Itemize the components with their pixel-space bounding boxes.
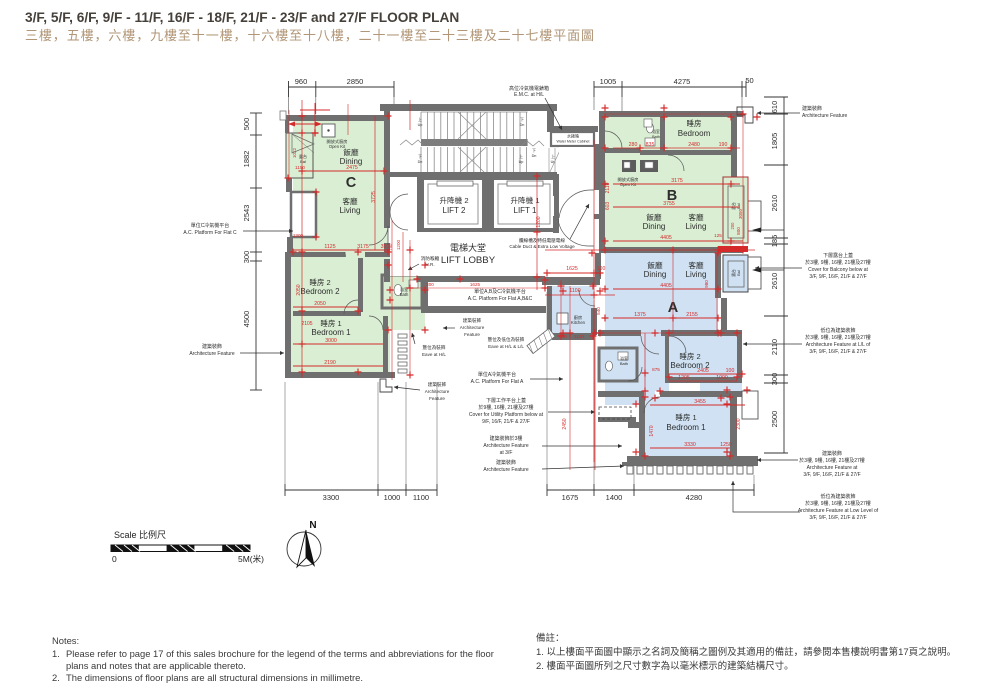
svg-text:3755: 3755 [663,201,675,207]
svg-text:2105: 2105 [301,321,312,327]
svg-text:1125: 1125 [324,244,335,250]
svg-text:3175: 3175 [671,178,683,184]
svg-text:露台: 露台 [731,269,736,277]
svg-text:Feature: Feature [464,332,480,337]
svg-text:1022: 1022 [292,147,297,158]
svg-text:Architecture Feature: Architecture Feature [483,443,529,449]
svg-text:Dining: Dining [643,222,666,231]
svg-text:1200: 1200 [536,216,542,227]
svg-text:建築裝飾: 建築裝飾 [496,459,516,466]
svg-text:980: 980 [704,280,709,288]
svg-text:建築裝飾: 建築裝飾 [463,317,482,324]
svg-text:2450: 2450 [562,418,568,429]
svg-text:2480: 2480 [688,142,700,148]
svg-text:1000: 1000 [716,375,728,381]
svg-text:200: 200 [730,222,735,230]
svg-text:1000: 1000 [384,493,401,502]
svg-text:4405: 4405 [660,235,672,241]
svg-text:建築裝飾: 建築裝飾 [802,105,822,112]
svg-text:A.C. Platform For Flat A,B&C: A.C. Platform For Flat A,B&C [468,296,533,302]
svg-text:1. 以上樓面平面圖中顯示之名詞及簡稱之圖例及其適用的備註: 1. 以上樓面平面圖中顯示之名詞及簡稱之圖例及其適用的備註，請參閱本售樓說明書第… [536,646,956,658]
svg-text:3/F, 9/F, 16/F, 21/F & 27/F: 3/F, 9/F, 16/F, 21/F & 27/F [803,472,860,478]
svg-text:2543: 2543 [242,205,251,222]
svg-text:於3樓, 9樓, 16樓, 21樓及27樓: 於3樓, 9樓, 16樓, 21樓及27樓 [805,334,871,341]
svg-text:Eave at H/L: Eave at H/L [422,352,446,357]
svg-text:Cover for Balcony below at: Cover for Balcony below at [808,267,868,273]
svg-text:1200: 1200 [396,239,401,250]
svg-text:3050: 3050 [738,208,743,219]
svg-text:1250: 1250 [720,442,732,448]
svg-text:Living: Living [340,206,361,215]
svg-text:300: 300 [426,282,434,287]
svg-text:185: 185 [770,235,779,248]
svg-text:2475: 2475 [346,165,358,171]
svg-text:Bal: Bal [737,270,741,276]
svg-text:1300: 1300 [293,233,304,238]
svg-text:Architecture Feature at: Architecture Feature at [807,465,858,471]
svg-text:於3樓, 9樓, 16樓, 21樓及27樓: 於3樓, 9樓, 16樓, 21樓及27樓 [805,259,871,266]
svg-text:於3樓, 9樓, 16樓, 21樓及27樓: 於3樓, 9樓, 16樓, 21樓及27樓 [805,500,871,507]
svg-text:1400: 1400 [606,493,623,502]
svg-text:低位為建築裝飾: 低位為建築裝飾 [820,327,855,334]
svg-text:at 3/F: at 3/F [500,450,513,456]
svg-text:睡房 2: 睡房 2 [679,351,700,361]
svg-text:Architecture: Architecture [460,325,485,330]
svg-text:LIFT LOBBY: LIFT LOBBY [441,255,496,266]
svg-text:Bath: Bath [652,135,660,139]
svg-text:300: 300 [770,373,779,386]
svg-text:高位冷氣機電錶箱: 高位冷氣機電錶箱 [509,85,549,92]
svg-text:plans and notes that are appli: plans and notes that are applicable ther… [66,660,246,671]
svg-text:飯廳: 飯廳 [647,260,663,270]
svg-text:Notes:: Notes: [52,635,79,646]
svg-text:3300: 3300 [323,493,340,502]
svg-text:800: 800 [736,227,741,235]
svg-text:Cover for Utility Platform bel: Cover for Utility Platform below at [469,412,544,418]
svg-text:0: 0 [112,554,117,564]
svg-text:客廳: 客廳 [688,212,704,222]
svg-text:2405: 2405 [697,368,709,374]
svg-text:Eave at H/L & L/L: Eave at H/L & L/L [488,344,524,349]
svg-text:Bedroom 2: Bedroom 2 [300,287,340,296]
svg-text:3330: 3330 [684,442,696,448]
svg-text:2850: 2850 [347,77,364,86]
svg-text:LIFT 1: LIFT 1 [514,206,538,215]
svg-text:Up: Up [519,160,524,164]
svg-text:1375: 1375 [634,312,646,318]
svg-text:下: 下 [532,149,536,153]
svg-text:280: 280 [629,142,638,148]
svg-text:升降機 1: 升降機 1 [510,195,539,205]
svg-text:9/F, 16/F, 21/F & 27/F: 9/F, 16/F, 21/F & 27/F [482,419,530,425]
svg-text:190: 190 [719,142,728,148]
svg-text:603: 603 [605,202,611,211]
svg-text:4405: 4405 [660,283,672,289]
svg-text:A.C. Platform For Flat C: A.C. Platform For Flat C [183,230,237,236]
svg-text:500: 500 [242,118,251,131]
svg-text:Living: Living [686,270,707,279]
svg-text:2.: 2. [52,672,60,683]
svg-text:960: 960 [295,77,308,86]
svg-text:Dn: Dn [520,123,525,127]
svg-text:Architecture Feature: Architecture Feature [189,351,235,357]
svg-text:100: 100 [597,266,606,272]
svg-text:1470: 1470 [649,425,655,436]
svg-text:電梯大堂: 電梯大堂 [450,242,486,253]
svg-text:5M(米): 5M(米) [238,554,264,564]
svg-text:The dimensions of floor plans: The dimensions of floor plans are all st… [66,672,363,683]
svg-text:2050: 2050 [314,301,326,307]
svg-text:3/F, 5/F, 6/F, 9/F - 11/F, 16/: 3/F, 5/F, 6/F, 9/F - 11/F, 16/F - 18/F, … [25,10,459,25]
svg-text:Bath: Bath [400,292,409,297]
svg-text:下: 下 [520,118,524,122]
svg-text:Architecture: Architecture [425,389,450,394]
svg-text:50: 50 [745,76,753,85]
svg-text:Bal: Bal [737,203,741,209]
svg-text:Please refer to page 17 of thi: Please refer to page 17 of this sales br… [66,648,494,659]
svg-text:1100: 1100 [413,493,429,502]
svg-text:睡房 1: 睡房 1 [320,318,341,328]
svg-text:1150: 1150 [295,165,305,170]
svg-text:上: 上 [551,154,555,159]
svg-text:三樓，五樓，六樓，九樓至十一樓，十六樓至十八樓，二十一樓至二: 三樓，五樓，六樓，九樓至十一樓，十六樓至十八樓，二十一樓至二十三樓及二十七樓平面… [25,28,595,43]
svg-text:建築裝飾: 建築裝飾 [428,381,447,388]
svg-text:875: 875 [652,367,660,372]
svg-text:水錶箱: 水錶箱 [567,133,579,139]
svg-text:LIFT 2: LIFT 2 [443,206,467,215]
svg-text:建築裝飾: 建築裝飾 [822,450,842,457]
svg-text:浴室: 浴室 [652,129,660,134]
svg-text:2610: 2610 [770,195,779,212]
svg-text:1005: 1005 [600,77,617,86]
svg-text:835: 835 [646,142,655,148]
svg-text:Bal: Bal [300,159,306,164]
svg-text:2300: 2300 [736,418,742,429]
svg-text:2610: 2610 [770,273,779,290]
svg-text:3725: 3725 [371,191,377,203]
svg-text:3175: 3175 [357,244,369,250]
svg-text:低位為建築裝飾: 低位為建築裝飾 [820,493,855,500]
svg-text:2155: 2155 [686,312,698,318]
svg-text:4280: 4280 [686,493,703,502]
svg-text:下層露台上蓋: 下層露台上蓋 [823,252,853,259]
svg-text:下: 下 [418,155,422,159]
svg-text:4275: 4275 [674,77,691,86]
svg-text:Up: Up [418,123,423,127]
svg-text:露台: 露台 [731,202,736,210]
svg-text:上: 上 [418,117,422,122]
svg-text:Kitchen: Kitchen [571,320,586,325]
svg-text:單位C冷氣機平台: 單位C冷氣機平台 [191,222,230,229]
svg-text:Bedroom: Bedroom [678,129,711,138]
svg-text:消防喉轆: 消防喉轆 [421,255,440,262]
svg-text:1675: 1675 [562,493,579,502]
svg-text:簷位為裝飾: 簷位為裝飾 [423,344,446,351]
svg-text:Living: Living [686,222,707,231]
svg-text:建築裝飾: 建築裝飾 [202,343,222,350]
svg-text:客廳: 客廳 [342,196,358,206]
svg-text:Dn: Dn [418,160,423,164]
svg-text:2. 樓面平面圖所列之尺寸數字為以毫米標示的建築結構尺寸。: 2. 樓面平面圖所列之尺寸數字為以毫米標示的建築結構尺寸。 [536,660,794,672]
svg-text:3455: 3455 [694,399,706,405]
svg-text:3/F, 9/F, 16/F, 21/F & 27/F: 3/F, 9/F, 16/F, 21/F & 27/F [809,515,866,521]
svg-text:於3樓, 9樓, 16樓, 21樓及27樓: 於3樓, 9樓, 16樓, 21樓及27樓 [799,457,865,464]
svg-text:簷位及低位為裝飾: 簷位及低位為裝飾 [488,336,525,343]
svg-text:Bedroom 1: Bedroom 1 [311,328,351,337]
svg-text:E.M.C. at H/L: E.M.C. at H/L [514,92,544,98]
svg-text:1882: 1882 [242,151,251,168]
svg-text:4500: 4500 [242,311,251,328]
svg-text:2110: 2110 [770,339,779,355]
svg-text:睡房: 睡房 [687,118,702,128]
svg-text:Dn: Dn [532,154,537,158]
svg-text:Water Meter Cabinet: Water Meter Cabinet [556,140,589,144]
svg-text:3/F, 9/F, 16/F, 21/F & 27/F: 3/F, 9/F, 16/F, 21/F & 27/F [809,349,866,355]
svg-text:Dining: Dining [644,270,667,279]
svg-text:1100: 1100 [574,334,584,339]
svg-text:2050: 2050 [296,284,302,295]
svg-text:Scale 比例尺: Scale 比例尺 [114,529,166,540]
svg-text:建築裝飾於3樓: 建築裝飾於3樓 [490,435,523,442]
svg-text:1625: 1625 [470,282,481,287]
svg-text:飯廳: 飯廳 [646,212,662,222]
svg-text:1205: 1205 [678,375,690,381]
svg-text:1805: 1805 [770,133,779,150]
svg-text:睡房 2: 睡房 2 [309,277,330,287]
svg-text:Bath: Bath [620,361,628,366]
svg-text:Cable Duct & Extra Low Voltage: Cable Duct & Extra Low Voltage [509,244,575,249]
svg-text:單位A,B及C冷氣機平台: 單位A,B及C冷氣機平台 [474,288,526,295]
svg-text:A.C. Platform For Flat A: A.C. Platform For Flat A [471,379,524,385]
svg-text:客廳: 客廳 [688,260,704,270]
svg-text:2190: 2190 [324,360,336,366]
svg-text:C: C [346,175,357,191]
svg-text:單位A冷氣機平台: 單位A冷氣機平台 [478,371,516,378]
svg-text:於9樓, 16樓, 21樓及27樓: 於9樓, 16樓, 21樓及27樓 [478,404,533,411]
svg-text:睡房 1: 睡房 1 [675,412,696,422]
svg-text:Architecture Feature: Architecture Feature [483,467,529,473]
svg-text:Architecture Feature at Low Le: Architecture Feature at Low Level of [798,508,879,514]
svg-text:下層工作平台上蓋: 下層工作平台上蓋 [486,397,526,404]
svg-text:備註：: 備註： [536,632,565,644]
svg-text:Bedroom 1: Bedroom 1 [666,423,706,432]
svg-text:N: N [309,520,316,531]
svg-text:Architecture Feature: Architecture Feature [802,113,848,119]
svg-text:Open Kit: Open Kit [620,182,637,187]
svg-text:125: 125 [714,233,722,238]
svg-text:Feature: Feature [429,396,445,401]
svg-text:纜線槽及特低電壓電線: 纜線槽及特低電壓電線 [519,237,565,244]
svg-text:300: 300 [242,251,251,264]
svg-text:2500: 2500 [770,411,779,428]
svg-text:100: 100 [726,368,735,374]
svg-text:1625: 1625 [566,266,578,272]
svg-text:飯廳: 飯廳 [343,147,359,157]
svg-text:上: 上 [519,154,523,159]
svg-text:1.: 1. [52,648,60,659]
svg-text:1100: 1100 [569,288,580,294]
svg-text:540: 540 [596,307,601,315]
svg-text:3/F, 9/F, 16/F, 21/F & 27/F: 3/F, 9/F, 16/F, 21/F & 27/F [809,274,866,280]
svg-text:升降機 2: 升降機 2 [439,195,468,205]
svg-text:Architecture Feature at L/L of: Architecture Feature at L/L of [806,342,871,348]
svg-text:610: 610 [770,101,779,114]
svg-text:3000: 3000 [325,338,337,344]
